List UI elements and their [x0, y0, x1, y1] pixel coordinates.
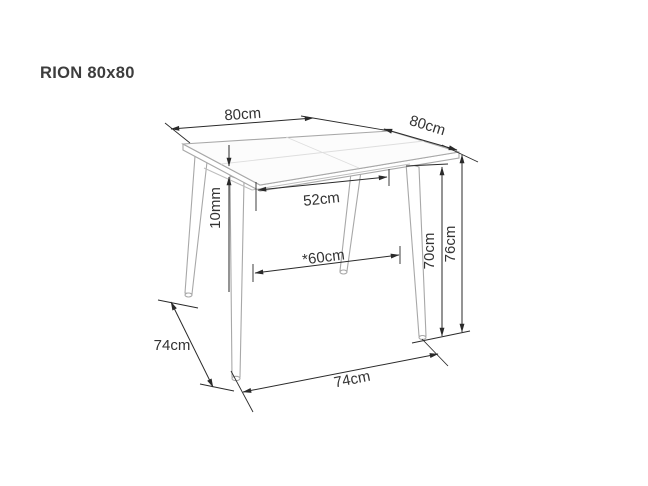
table-leg-left — [185, 156, 207, 297]
dimension-base-width: 74cm — [231, 339, 448, 412]
dim-top-thickness-label: 10mm — [207, 187, 224, 229]
dim-top-depth-label: 80cm — [407, 112, 447, 139]
table-diagram: 80cm 80cm 52cm 10mm *60cm — [0, 0, 648, 486]
table-leg-front — [230, 176, 244, 381]
dimension-base-depth: 74cm — [154, 300, 234, 391]
dim-total-height-label: 76cm — [442, 226, 459, 263]
dim-top-width-label: 80cm — [224, 105, 262, 125]
dim-legs-top-span-label: 52cm — [302, 189, 340, 210]
dim-underside-height-label: 70cm — [421, 233, 438, 270]
dim-base-width-label: 74cm — [333, 368, 372, 392]
dimension-legs-floor-span: *60cm — [253, 246, 400, 282]
dim-base-depth-label: 74cm — [154, 337, 191, 354]
dimension-drawing-page: RION 80x80 — [0, 0, 648, 486]
dim-legs-floor-span-label: *60cm — [301, 247, 345, 269]
